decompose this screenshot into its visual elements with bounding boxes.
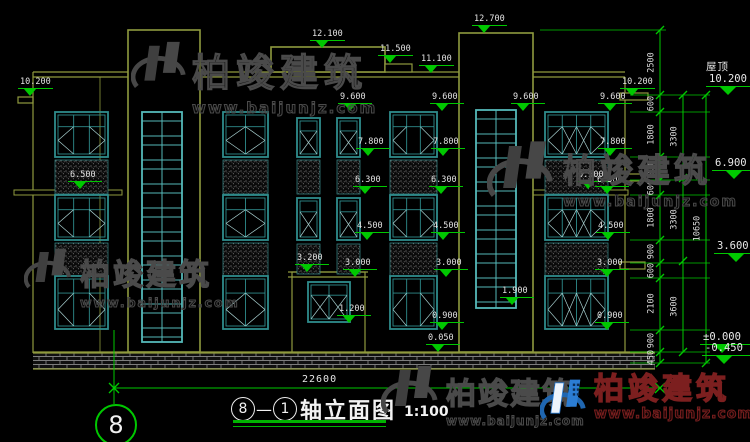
sash-diagonal bbox=[548, 210, 562, 224]
window-inner bbox=[340, 201, 357, 237]
sash-diagonal bbox=[393, 223, 407, 237]
brand-logo-icon bbox=[540, 374, 588, 430]
sash-diagonal bbox=[393, 127, 407, 141]
sash-diagonal bbox=[226, 127, 246, 141]
sash-diagonal bbox=[393, 140, 407, 154]
sash-diagonal bbox=[548, 310, 562, 326]
sash-diagonal bbox=[591, 310, 605, 326]
sash-diagonal bbox=[548, 140, 562, 154]
sash-diagonal bbox=[58, 140, 74, 154]
spandrel-panel bbox=[390, 243, 437, 276]
plinth-brick-band bbox=[33, 353, 655, 369]
window bbox=[297, 198, 320, 240]
brand-name: 柏竣建筑 bbox=[594, 374, 750, 406]
sash-diagonal bbox=[548, 293, 562, 309]
window bbox=[390, 276, 437, 329]
roof-slab-right bbox=[620, 93, 648, 100]
sash-diagonal bbox=[548, 127, 562, 141]
spandrel-panel bbox=[55, 160, 108, 194]
parapet-step bbox=[385, 64, 412, 72]
sash-diagonal bbox=[591, 293, 605, 309]
parapet-box bbox=[271, 47, 385, 72]
window bbox=[337, 198, 360, 240]
sash-diagonal bbox=[591, 223, 605, 237]
sash-diagonal bbox=[58, 127, 74, 141]
sash-diagonal bbox=[393, 293, 407, 309]
sash-diagonal bbox=[420, 310, 434, 326]
window-inner bbox=[340, 121, 357, 154]
sash-diagonal bbox=[58, 210, 74, 224]
sash-diagonal bbox=[393, 210, 407, 224]
window-inner bbox=[300, 121, 317, 154]
sash-diagonal bbox=[89, 210, 105, 224]
spandrel-panel bbox=[223, 160, 268, 194]
sash-diagonal bbox=[226, 210, 246, 224]
brand-url: www.baijunjz.com bbox=[594, 406, 750, 422]
title-axis-to-circle: 1 bbox=[273, 397, 297, 421]
spandrel-panel bbox=[55, 243, 108, 276]
wall-rect bbox=[18, 97, 33, 103]
sash-diagonal bbox=[420, 293, 434, 309]
sash-diagonal bbox=[420, 223, 434, 237]
window bbox=[390, 112, 437, 157]
title-underline-thin bbox=[233, 426, 386, 427]
window bbox=[390, 195, 437, 240]
spandrel-panel bbox=[337, 160, 360, 194]
sash-diagonal bbox=[58, 223, 74, 237]
sash-diagonal bbox=[89, 223, 105, 237]
sash-diagonal bbox=[89, 293, 105, 309]
brand-logo: 柏竣建筑 www.baijunjz.com bbox=[540, 374, 750, 430]
sash-diagonal bbox=[58, 293, 74, 309]
porch bbox=[292, 272, 365, 353]
spandrel-panel bbox=[545, 243, 608, 276]
sash-diagonal bbox=[591, 127, 605, 141]
window bbox=[337, 118, 360, 157]
sash-diagonal bbox=[89, 310, 105, 326]
sash-diagonal bbox=[226, 293, 246, 309]
sash-diagonal bbox=[246, 127, 266, 141]
sash-diagonal bbox=[548, 223, 562, 237]
window-inner bbox=[300, 201, 317, 237]
spandrel-panel bbox=[297, 244, 320, 274]
sash-diagonal bbox=[89, 140, 105, 154]
spandrel-panel bbox=[390, 160, 437, 194]
sash-diagonal bbox=[246, 140, 266, 154]
spandrel-panel bbox=[337, 244, 360, 274]
sash-diagonal bbox=[420, 140, 434, 154]
spandrel-panel bbox=[297, 160, 320, 194]
sash-diagonal bbox=[226, 310, 246, 326]
cad-elevation-screenshot: 2500600180090060018009006002100900450330… bbox=[0, 0, 750, 442]
sash-diagonal bbox=[591, 210, 605, 224]
axis-bubble-8: 8 bbox=[95, 404, 137, 442]
sash-diagonal bbox=[420, 210, 434, 224]
title-scale: 1:100 bbox=[404, 404, 449, 420]
title-underline-thick bbox=[233, 420, 386, 423]
window bbox=[297, 118, 320, 157]
sash-diagonal bbox=[420, 127, 434, 141]
sash-diagonal bbox=[58, 310, 74, 326]
spandrel-panel bbox=[223, 243, 268, 276]
sash-diagonal bbox=[89, 127, 105, 141]
sash-diagonal bbox=[591, 140, 605, 154]
spandrel-panel bbox=[545, 160, 608, 194]
sash-diagonal bbox=[393, 310, 407, 326]
sash-diagonal bbox=[246, 210, 266, 224]
title-axis-from-circle: 8 bbox=[231, 397, 255, 421]
sash-diagonal bbox=[226, 223, 246, 237]
sash-diagonal bbox=[246, 223, 266, 237]
title-dash: — bbox=[256, 400, 272, 419]
sash-diagonal bbox=[246, 310, 266, 326]
sash-diagonal bbox=[226, 140, 246, 154]
sash-diagonal bbox=[246, 293, 266, 309]
